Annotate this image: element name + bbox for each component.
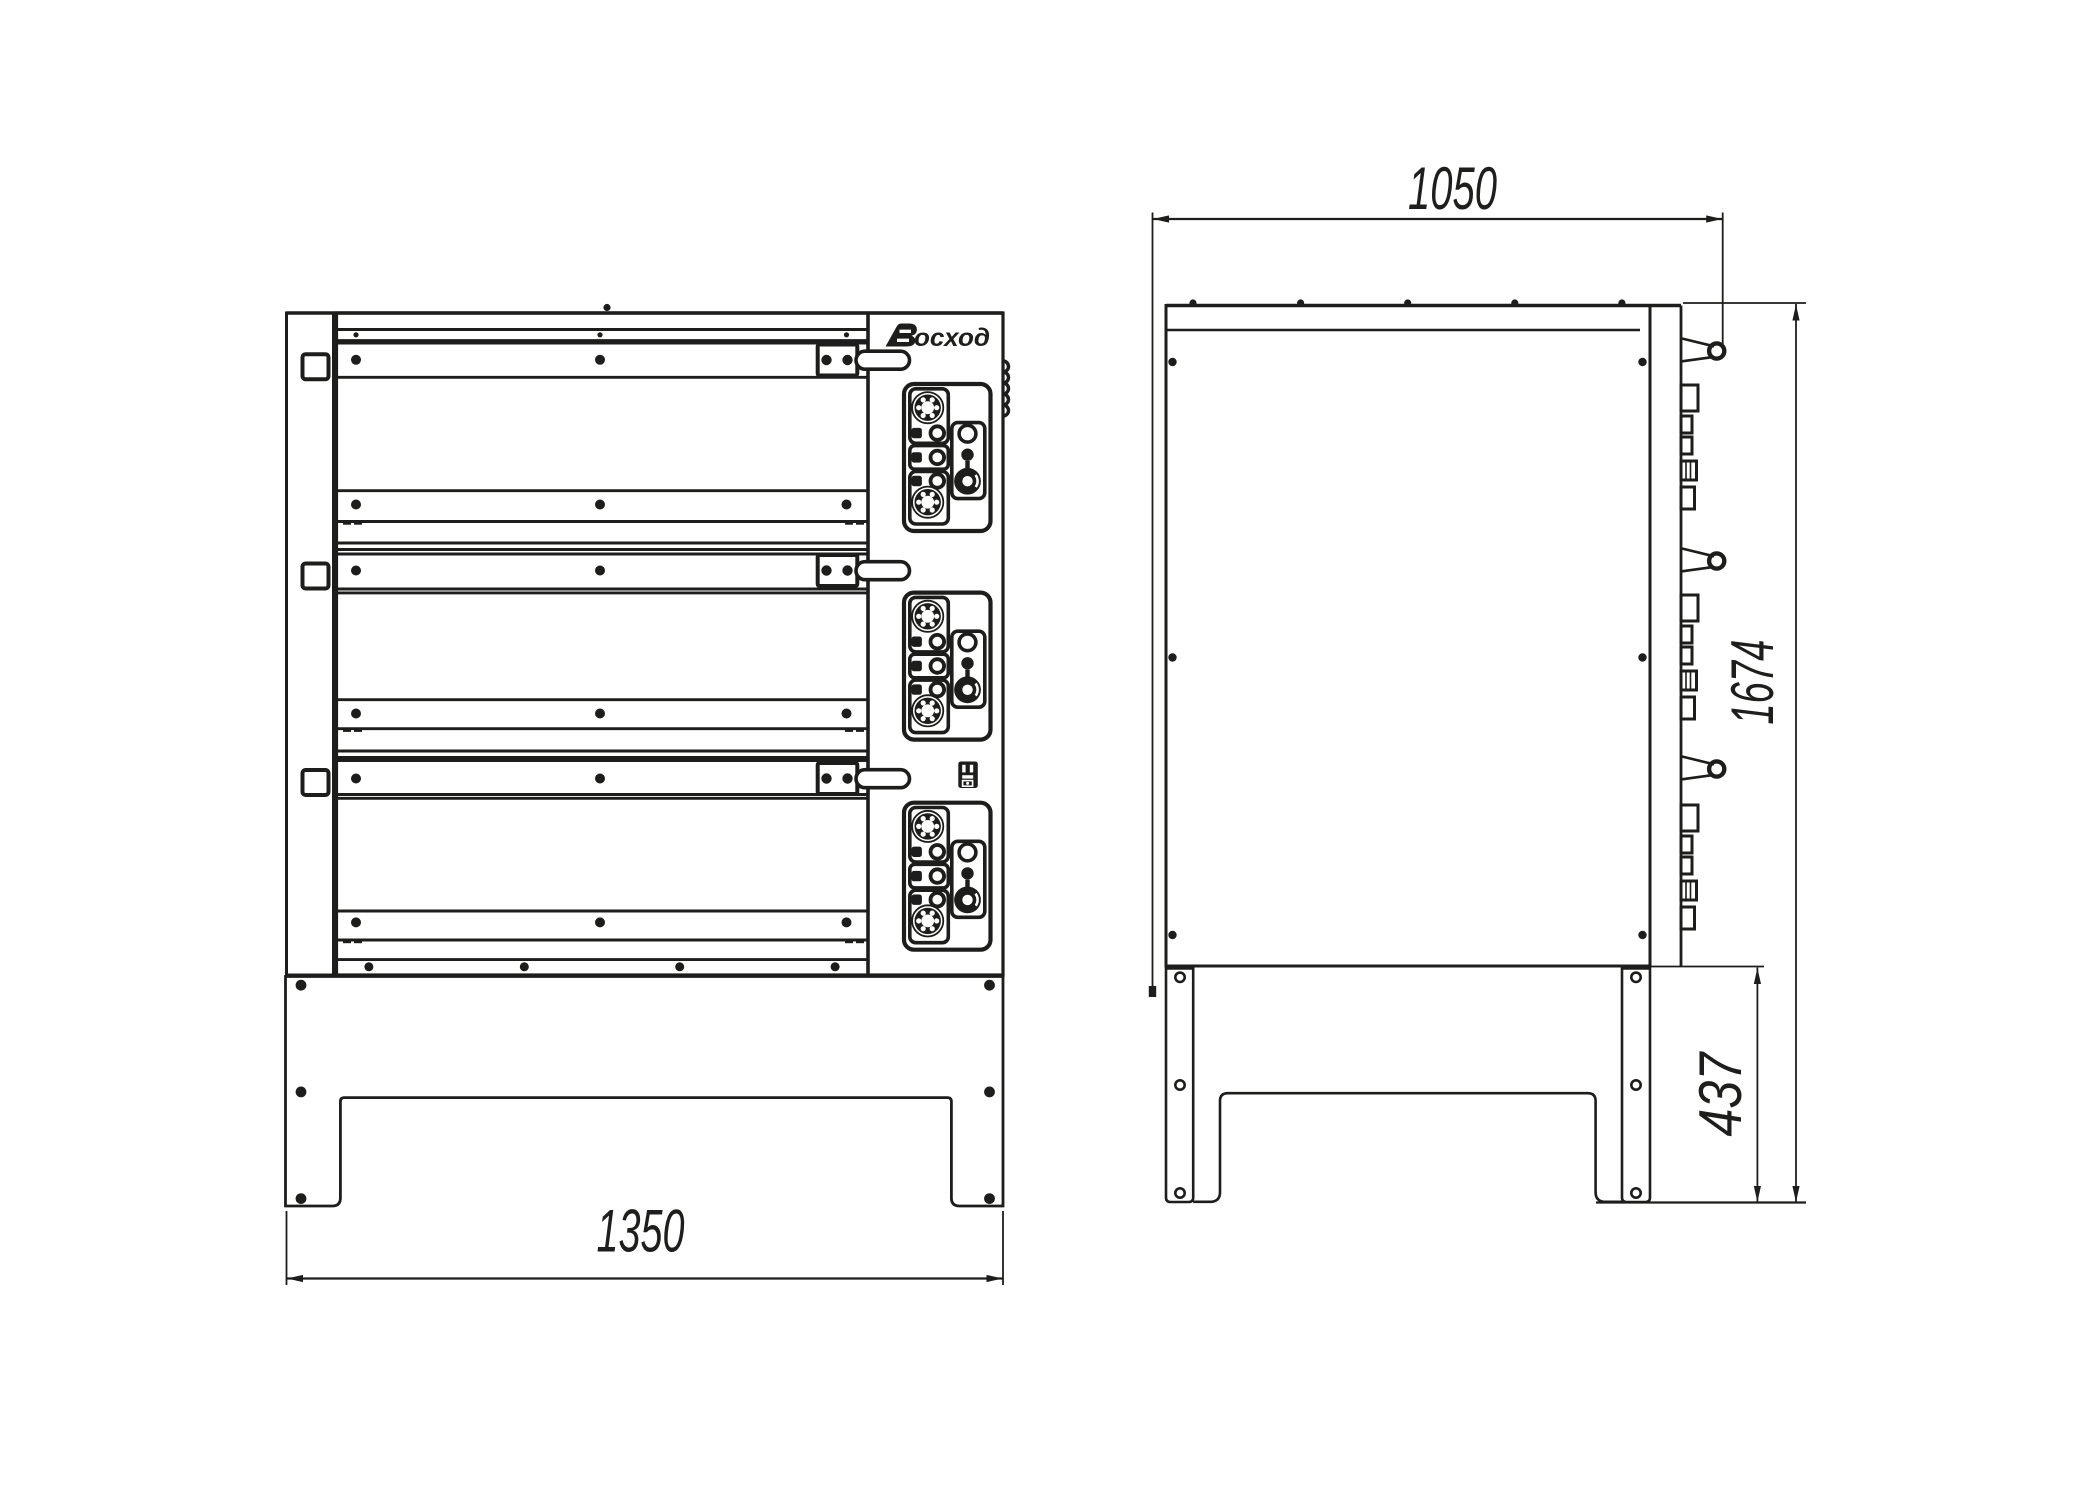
svg-text:437: 437 [1687, 1050, 1754, 1136]
svg-text:1674: 1674 [1719, 640, 1786, 725]
svg-text:осход: осход [914, 324, 990, 352]
svg-text:1350: 1350 [597, 1198, 685, 1265]
svg-text:1050: 1050 [1408, 155, 1497, 222]
